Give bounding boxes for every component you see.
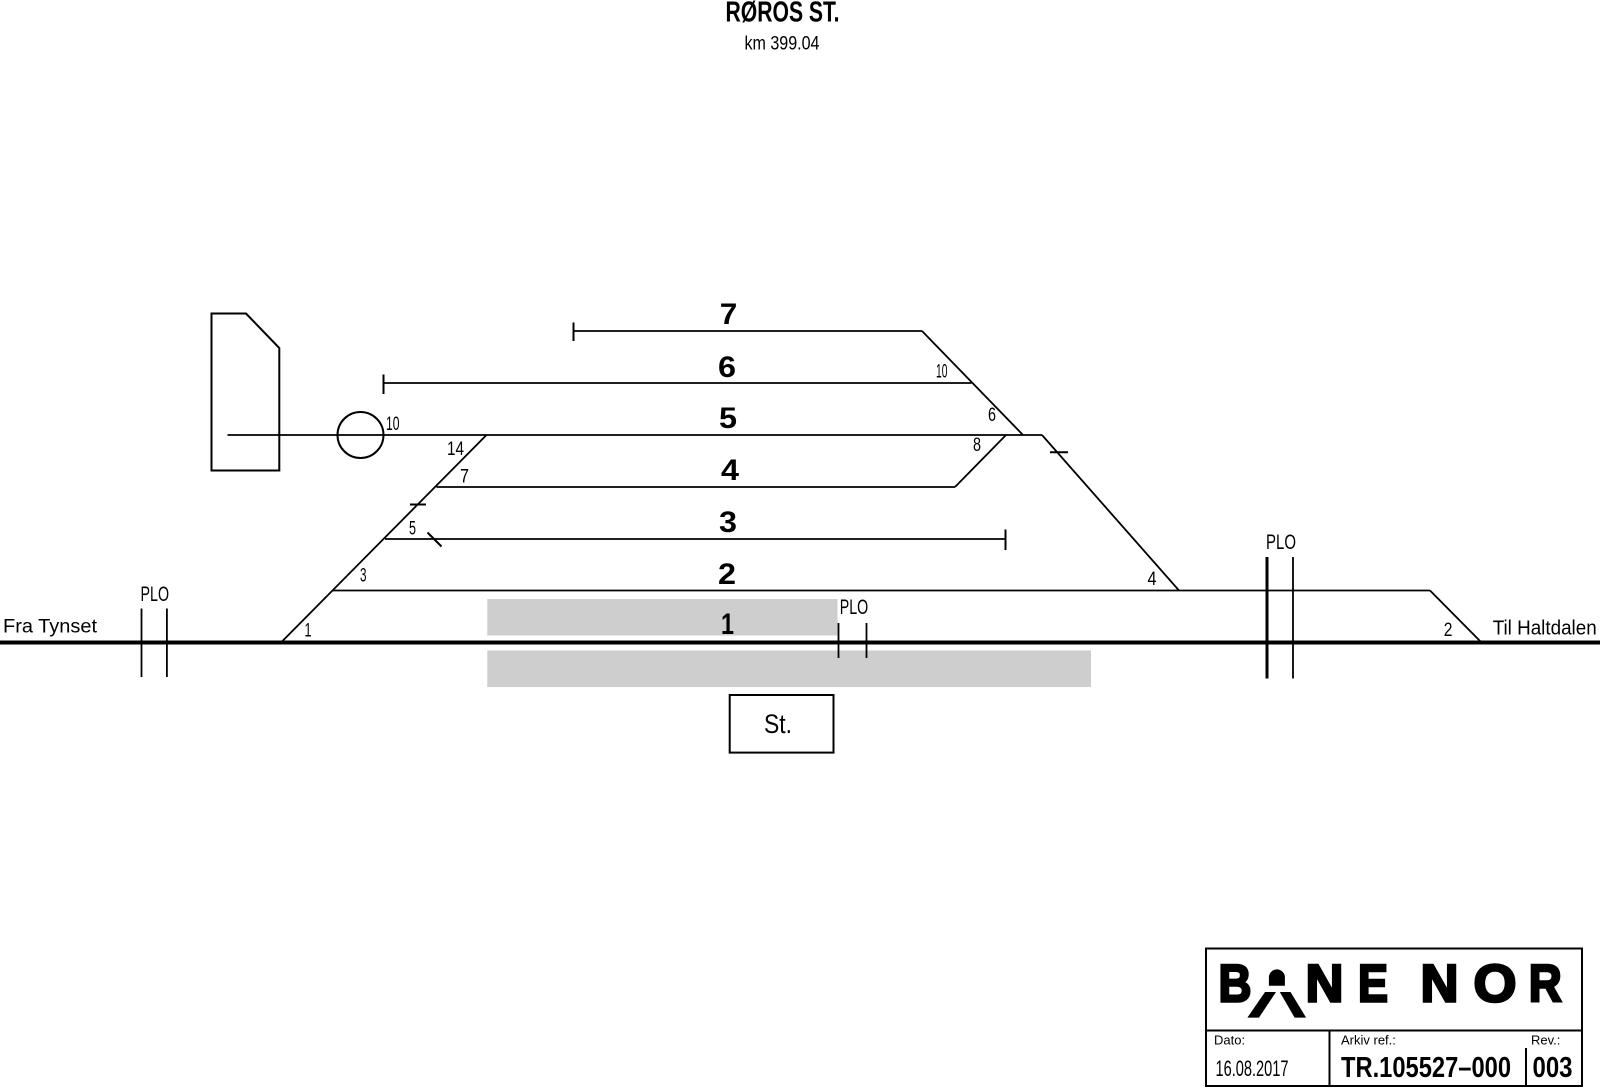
svg-text:6: 6 xyxy=(718,351,736,384)
svg-text:7: 7 xyxy=(720,298,738,331)
svg-text:Dato:: Dato: xyxy=(1214,1033,1245,1048)
svg-text:RØROS ST.: RØROS ST. xyxy=(726,0,840,29)
svg-text:2: 2 xyxy=(1444,619,1453,641)
svg-text:km 399.04: km 399.04 xyxy=(745,33,820,55)
svg-text:1: 1 xyxy=(305,620,312,642)
svg-text:PLO: PLO xyxy=(1266,531,1296,554)
svg-text:003: 003 xyxy=(1533,1052,1573,1084)
svg-text:St.: St. xyxy=(764,709,792,739)
svg-text:N: N xyxy=(1306,955,1344,1014)
svg-text:PLO: PLO xyxy=(840,596,869,619)
svg-text:Arkiv ref.:: Arkiv ref.: xyxy=(1341,1033,1396,1048)
svg-text:Fra Tynset: Fra Tynset xyxy=(3,617,98,638)
svg-text:Til Haltdalen: Til Haltdalen xyxy=(1493,618,1597,640)
svg-text:5: 5 xyxy=(409,518,416,540)
svg-text:10: 10 xyxy=(386,413,400,435)
svg-text:14: 14 xyxy=(447,438,464,460)
svg-text:TR.105527–000: TR.105527–000 xyxy=(1341,1052,1511,1084)
svg-text:N: N xyxy=(1421,955,1459,1014)
svg-text:3: 3 xyxy=(719,506,737,539)
svg-text:1: 1 xyxy=(721,608,734,641)
svg-text:10: 10 xyxy=(936,361,948,383)
svg-text:B: B xyxy=(1219,955,1252,1014)
svg-text:PLO: PLO xyxy=(141,583,170,606)
svg-text:5: 5 xyxy=(719,402,737,435)
svg-text:4: 4 xyxy=(1148,568,1157,590)
svg-text:Rev.:: Rev.: xyxy=(1531,1033,1560,1048)
svg-text:2: 2 xyxy=(718,558,736,591)
svg-text:R: R xyxy=(1529,955,1562,1014)
svg-text:O: O xyxy=(1474,955,1517,1014)
svg-text:4: 4 xyxy=(721,454,739,487)
svg-text:6: 6 xyxy=(988,404,996,426)
svg-text:E: E xyxy=(1358,955,1388,1014)
svg-text:7: 7 xyxy=(460,466,469,488)
svg-text:8: 8 xyxy=(973,434,981,456)
svg-text:3: 3 xyxy=(360,565,367,587)
svg-text:16.08.2017: 16.08.2017 xyxy=(1216,1056,1289,1081)
